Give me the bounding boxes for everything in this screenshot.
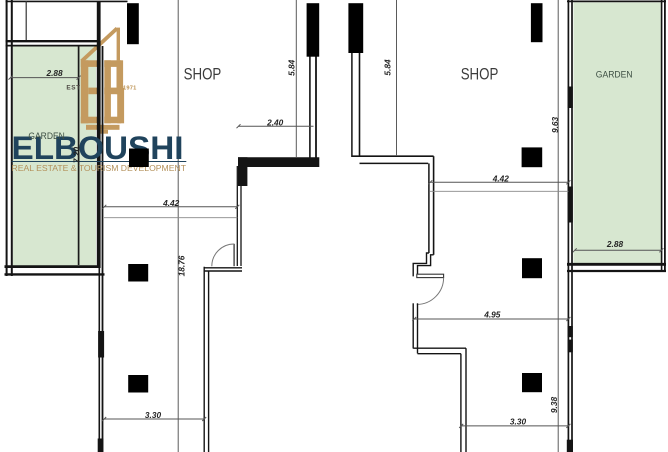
svg-text:9.63: 9.63 [550,116,560,133]
svg-text:SHOP: SHOP [461,66,499,84]
svg-text:REAL ESTATE & TOURISM DEVELOPM: REAL ESTATE & TOURISM DEVELOPMENT [12,164,187,173]
svg-text:9.38: 9.38 [549,397,559,414]
svg-text:5.84: 5.84 [287,59,297,76]
svg-text:1971: 1971 [123,86,136,92]
svg-text:2.88: 2.88 [46,68,64,78]
svg-text:18.76: 18.76 [177,255,187,276]
svg-text:4.42: 4.42 [492,173,510,183]
svg-text:7.20: 7.20 [72,147,82,164]
svg-text:GARDEN: GARDEN [596,69,633,79]
svg-text:4.42: 4.42 [162,198,180,208]
svg-text:SHOP: SHOP [184,66,222,84]
svg-text:EST: EST [66,84,80,91]
svg-text:2.88: 2.88 [606,239,624,249]
svg-text:5.84: 5.84 [382,59,392,76]
svg-text:2.40: 2.40 [266,117,284,127]
svg-text:3.30: 3.30 [510,417,527,427]
svg-text:3.30: 3.30 [145,410,162,420]
svg-text:GARDEN: GARDEN [28,131,64,141]
svg-text:4.95: 4.95 [483,309,501,319]
